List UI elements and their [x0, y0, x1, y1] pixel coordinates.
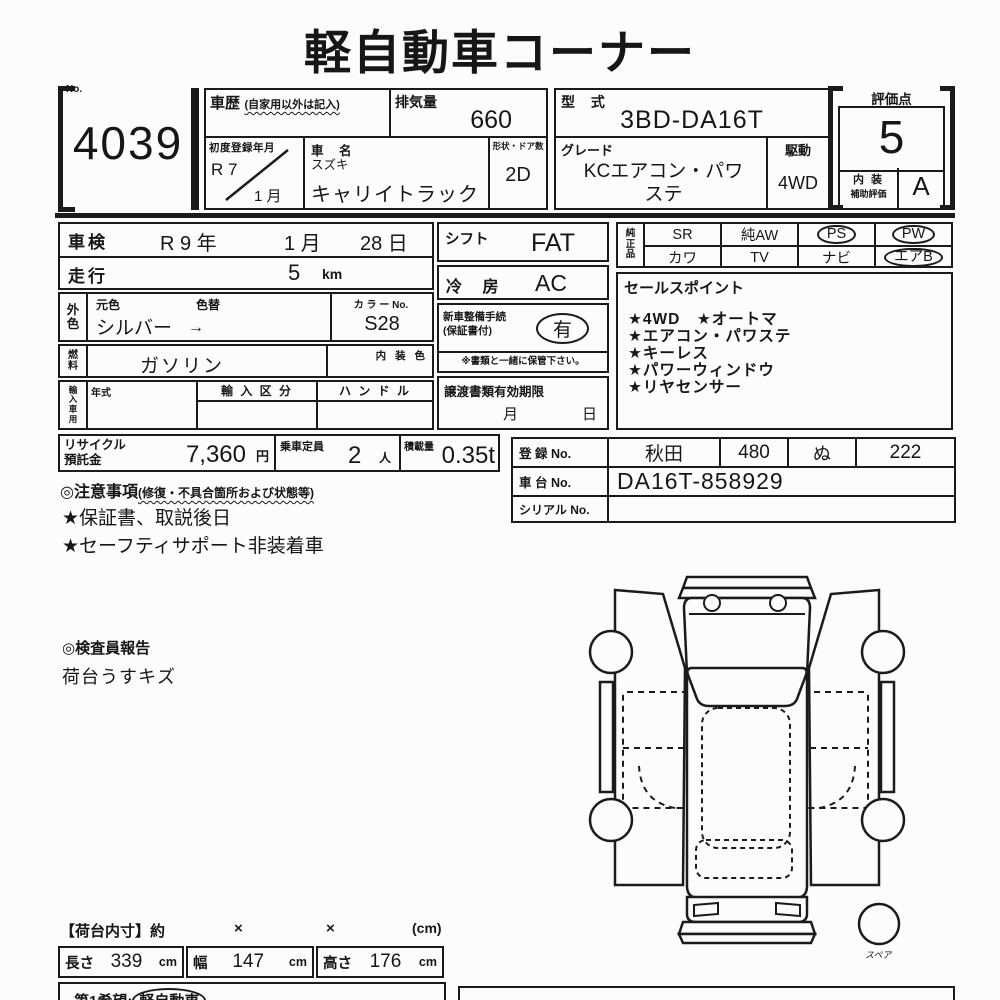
transfer-day-label: 日: [582, 403, 597, 424]
import-class-cell: 輸 入 区 分: [198, 382, 318, 428]
interior-score-row: 内 装 補助評価 A: [838, 168, 945, 210]
first-choice-label: 第1希望:: [74, 993, 132, 1000]
length-value: 339: [111, 951, 143, 973]
sales-points-label: セールスポイント: [618, 274, 951, 298]
procedure-box: 新車整備手続 (保証書付) 有 ※書類と一緒に保管下さい。: [437, 303, 609, 373]
first-registration-month: 1 月: [254, 185, 282, 206]
recycle-deposit-label: リサイクル 預託金: [64, 438, 126, 468]
footer-right-box: [458, 986, 955, 1000]
bed-dimensions-heading: 【荷台内寸】約 × × (cm): [60, 920, 460, 940]
sales-point: ★エアコン・パワステ: [628, 328, 951, 345]
times-sign: ×: [326, 920, 335, 937]
procedure-label: 新車整備手続 (保証書付): [443, 310, 506, 338]
shape-doors-label: 形状・ドア数: [490, 140, 546, 152]
sales-points-box: セールスポイント ★4WD ★オートマ ★エアコン・パワステ ★キーレス ★パワ…: [616, 272, 953, 430]
times-sign: ×: [234, 920, 243, 937]
car-history-label: 車歴: [210, 95, 240, 112]
chassis-row: 車 台 No. DA16T-858929: [513, 468, 954, 497]
genuine-parts-grid: SR 純AW PS PW カワ TV ナビ エアB: [645, 224, 951, 266]
auction-sheet: 軽自動車コーナー No. 4039 車歴 (自家用以外は記入) 排気量 660 …: [0, 0, 1000, 1000]
registration-class: 480: [721, 439, 789, 466]
sales-point: ★4WD ★オートマ: [628, 311, 951, 328]
chassis-value: DA16T-858929: [609, 468, 784, 495]
fuel-value: ガソリン: [88, 346, 326, 376]
import-handle-label: ハ ン ド ル: [318, 382, 432, 402]
displacement-label: 排気量: [395, 92, 437, 112]
grade-value: KCエアコン・パワステ: [578, 161, 750, 207]
registration-number: 222: [857, 439, 954, 466]
first-choice-value: 軽自動車: [132, 988, 206, 1000]
registration-kana: ぬ: [789, 439, 857, 466]
genuine-airbag: エアB: [876, 247, 951, 268]
lot-bracket-bottom: [58, 207, 75, 212]
load-capacity-value: 0.35t: [442, 442, 495, 470]
genuine-parts-side-label: 純正品: [618, 224, 645, 266]
cooling-label: 冷 房: [446, 273, 506, 297]
score-label: 評価点: [828, 88, 955, 108]
spare-label: スペア: [865, 950, 892, 960]
capacity-box: 乗車定員 2 人: [274, 434, 401, 472]
car-history-box: 車歴 (自家用以外は記入): [204, 88, 391, 138]
sales-point: ★リヤセンサー: [628, 379, 951, 396]
genuine-ps: PS: [799, 224, 876, 245]
color-arrow: →: [188, 319, 204, 337]
height-value: 176: [370, 951, 402, 973]
transfer-month-label: 月: [503, 403, 518, 424]
inspection-month: 1 月: [284, 227, 321, 256]
length-box: 長さ 339 cm: [58, 946, 184, 978]
import-box: 輸入車用 年式 輸 入 区 分 ハ ン ド ル: [58, 380, 434, 430]
shape-doors-value: 2D: [490, 164, 546, 187]
interior-color-label: 内 装 色: [328, 346, 432, 363]
lot-bracket: [58, 86, 63, 212]
chassis-label: 車 台 No.: [513, 468, 609, 495]
lot-no-label: No.: [66, 84, 82, 95]
drive-label: 駆動: [768, 140, 828, 159]
divider-bar: [191, 88, 199, 210]
horizontal-rule: [55, 213, 955, 218]
grade-cell: グレード KCエアコン・パワステ: [556, 138, 766, 208]
caution-item: ★保証書、取説後日: [62, 503, 231, 530]
width-box: 幅 147 cm: [186, 946, 314, 978]
car-name-label: 車 名: [311, 140, 488, 159]
registration-row: 登 録 No. 秋田 480 ぬ 222: [513, 439, 954, 468]
sales-points-list: ★4WD ★オートマ ★エアコン・パワステ ★キーレス ★パワーウィンドウ ★リ…: [618, 298, 951, 396]
import-handle-cell: ハ ン ド ル: [318, 382, 432, 428]
fuel-side-label: 燃料: [60, 346, 88, 376]
load-capacity-box: 積載量 0.35t: [399, 434, 500, 472]
score-value: 5: [838, 106, 945, 172]
recycle-deposit-box: リサイクル 預託金 7,360 円: [58, 434, 276, 472]
height-box: 高さ 176 cm: [316, 946, 444, 978]
procedure-value-circled: 有: [536, 313, 589, 344]
drive-value: 4WD: [768, 173, 828, 194]
genuine-sr: SR: [645, 224, 722, 245]
exterior-color-box: 外色 元色 色替 シルバー → カ ラ ー No. S28: [58, 292, 434, 342]
recycle-deposit-unit: 円: [256, 446, 269, 465]
capacity-label: 乗車定員: [280, 438, 324, 454]
inspection-row: 車検 R 9 年 1 月 28 日: [60, 224, 432, 258]
shift-label: シフト: [445, 228, 489, 249]
genuine-aw: 純AW: [722, 224, 799, 245]
page-title: 軽自動車コーナー: [0, 14, 1000, 83]
transfer-docs-box: 譲渡書類有効期限 月 日: [437, 376, 609, 430]
serial-label: シリアル No.: [513, 497, 609, 521]
cooling-value: AC: [535, 270, 567, 297]
header-row2-left: 初度登録年月 R 7 1 月 車 名 スズキ キャリイトラック 形状・ドア数 2…: [204, 136, 548, 210]
genuine-row-1: SR 純AW PS PW: [645, 224, 951, 247]
import-year-cell: 年式: [88, 382, 198, 428]
exterior-color-value: シルバー: [96, 313, 172, 340]
inspection-year: R 9 年: [160, 227, 217, 256]
first-registration-year: R 7: [211, 160, 237, 180]
first-choice-box: 第1希望:軽自動車: [58, 982, 446, 1000]
cautions-heading: ◎注意事項(修復・不具合箇所および状態等): [60, 478, 314, 502]
sales-point: ★パワーウィンドウ: [628, 362, 951, 379]
mileage-row: 走行 5 km: [60, 258, 432, 289]
mileage-unit: km: [322, 266, 342, 282]
inspection-day: 28 日: [360, 227, 408, 256]
bed-dimensions-title: 【荷台内寸】約: [60, 920, 165, 941]
drive-cell: 駆動 4WD: [766, 138, 828, 208]
import-year-label: 年式: [88, 382, 196, 399]
shift-value: FAT: [531, 229, 575, 258]
car-damage-diagram: スペア: [575, 556, 955, 992]
maker-name: スズキ: [311, 159, 488, 173]
inspection-mileage-box: 車検 R 9 年 1 月 28 日 走行 5 km: [58, 222, 434, 290]
cooling-box: 冷 房 AC: [437, 265, 609, 300]
caution-item: ★セーフティサポート非装着車: [62, 531, 324, 558]
genuine-pw: PW: [876, 224, 951, 245]
recycle-deposit-value: 7,360: [186, 441, 246, 469]
genuine-navi: ナビ: [799, 247, 876, 268]
mileage-label: 走行: [68, 262, 108, 287]
procedure-row: 新車整備手続 (保証書付) 有: [439, 305, 607, 351]
car-name-value: キャリイトラック: [311, 178, 488, 207]
registration-area: 秋田: [609, 439, 721, 466]
model-code-value: 3BD-DA16T: [556, 106, 828, 135]
transfer-docs-label: 譲渡書類有効期限: [444, 381, 544, 400]
genuine-tv: TV: [722, 247, 799, 268]
capacity-value: 2: [348, 442, 361, 470]
interior-score-value: A: [899, 168, 943, 208]
inspection-label: 車検: [68, 228, 108, 253]
lot-number: 4039: [70, 116, 186, 170]
color-no-value: S28: [332, 313, 432, 336]
registration-table: 登 録 No. 秋田 480 ぬ 222 車 台 No. DA16T-85892…: [511, 437, 956, 523]
color-change-label: 色替: [196, 296, 220, 313]
mileage-value: 5: [288, 260, 300, 286]
car-history-note: (自家用以外は記入): [244, 99, 339, 111]
fuel-box: 燃料 ガソリン 内 装 色: [58, 344, 434, 378]
displacement-value: 660: [470, 106, 512, 135]
model-code-box: 型 式 3BD-DA16T: [554, 88, 830, 138]
genuine-row-2: カワ TV ナビ エアB: [645, 247, 951, 268]
interior-color-cell: 内 装 色: [326, 346, 432, 376]
procedure-note: ※書類と一緒に保管下さい。: [439, 351, 607, 372]
shift-box: シフト FAT: [437, 222, 609, 262]
inspector-report-item: 荷台うすキズ: [62, 663, 176, 689]
import-side-label: 輸入車用: [60, 382, 88, 428]
grade-label: グレード: [561, 140, 766, 159]
color-no-label: カ ラ ー No.: [332, 296, 430, 311]
bed-dimensions-unit: (cm): [412, 920, 442, 936]
load-capacity-label: 積載量: [404, 438, 434, 453]
registration-label: 登 録 No.: [513, 439, 609, 466]
color-no-cell: カ ラ ー No. S28: [330, 294, 432, 340]
inspector-report-label: ◎検査員報告: [62, 637, 150, 658]
car-name-cell: 車 名 スズキ キャリイトラック: [305, 138, 488, 208]
genuine-kawa: カワ: [645, 247, 722, 268]
header-row2-right: グレード KCエアコン・パワステ 駆動 4WD: [554, 136, 830, 210]
width-value: 147: [232, 951, 264, 973]
shape-doors-cell: 形状・ドア数 2D: [488, 138, 546, 208]
original-color-label: 元色: [96, 296, 120, 313]
serial-row: シリアル No.: [513, 497, 954, 521]
genuine-parts-box: 純正品 SR 純AW PS PW カワ TV ナビ エアB: [616, 222, 953, 268]
sales-point: ★キーレス: [628, 345, 951, 362]
score-box: 評価点 5 内 装 補助評価 A: [828, 86, 955, 210]
displacement-box: 排気量 660: [389, 88, 548, 138]
interior-score-label: 内 装 補助評価: [840, 168, 899, 208]
first-registration-cell: 初度登録年月 R 7 1 月: [206, 138, 305, 208]
import-class-label: 輸 入 区 分: [198, 382, 316, 402]
exterior-color-cell: 元色 色替 シルバー →: [88, 294, 330, 340]
capacity-unit: 人: [379, 449, 391, 466]
exterior-color-side-label: 外色: [60, 294, 88, 340]
